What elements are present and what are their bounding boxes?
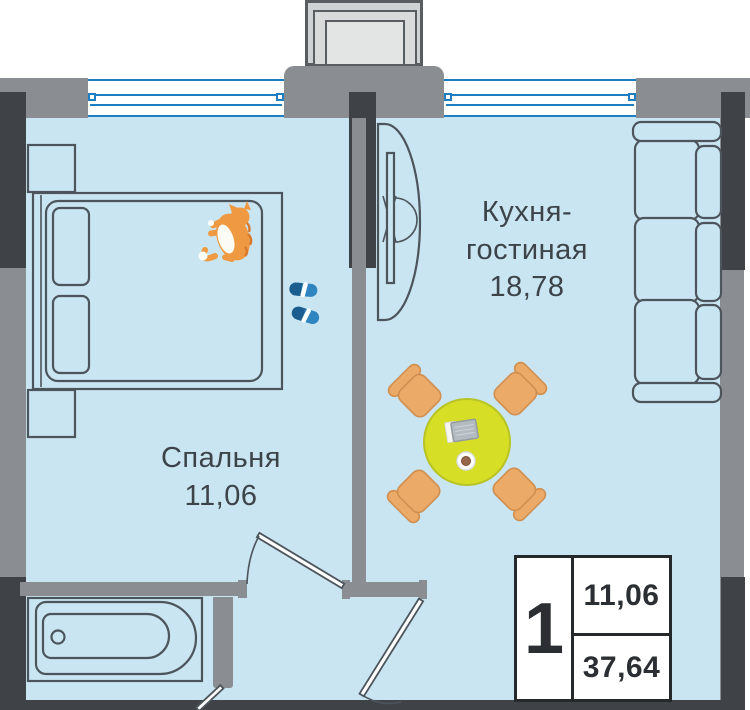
door-icon [196, 685, 223, 710]
slippers-icon [289, 281, 321, 327]
apartment-legend: 1 11,06 37,64 [514, 555, 672, 702]
pillow-icon [53, 208, 89, 285]
nightstand-icon [28, 390, 75, 437]
room-label-bedroom: Спальня 11,06 [141, 440, 301, 515]
bathtub-icon [28, 598, 202, 681]
rooms-count: 1 [517, 558, 574, 699]
sofa-icon [633, 122, 721, 402]
nightstand-icon [28, 145, 75, 192]
pillow-icon [53, 296, 89, 373]
room-area: 11,06 [141, 478, 301, 516]
room-area: 18,78 [437, 269, 617, 307]
door-icon [360, 599, 424, 704]
bed-icon [28, 145, 282, 437]
room-name: Кухня- [437, 194, 617, 232]
cup-icon [457, 452, 475, 470]
tv-icon [378, 124, 420, 320]
room-name: гостиная [437, 232, 617, 270]
living-area-value: 11,06 [574, 558, 669, 636]
room-label-kitchen: Кухня- гостиная 18,78 [437, 194, 617, 307]
room-name: Спальня [141, 440, 301, 478]
tablet-icon [445, 418, 479, 443]
door-icon [247, 533, 344, 588]
floor-plan: Кухня- гостиная 18,78 Спальня 11,06 1 11… [0, 0, 750, 710]
chair-icon [385, 465, 445, 525]
total-area-value: 37,64 [574, 636, 669, 699]
dining-table-icon [424, 399, 510, 485]
